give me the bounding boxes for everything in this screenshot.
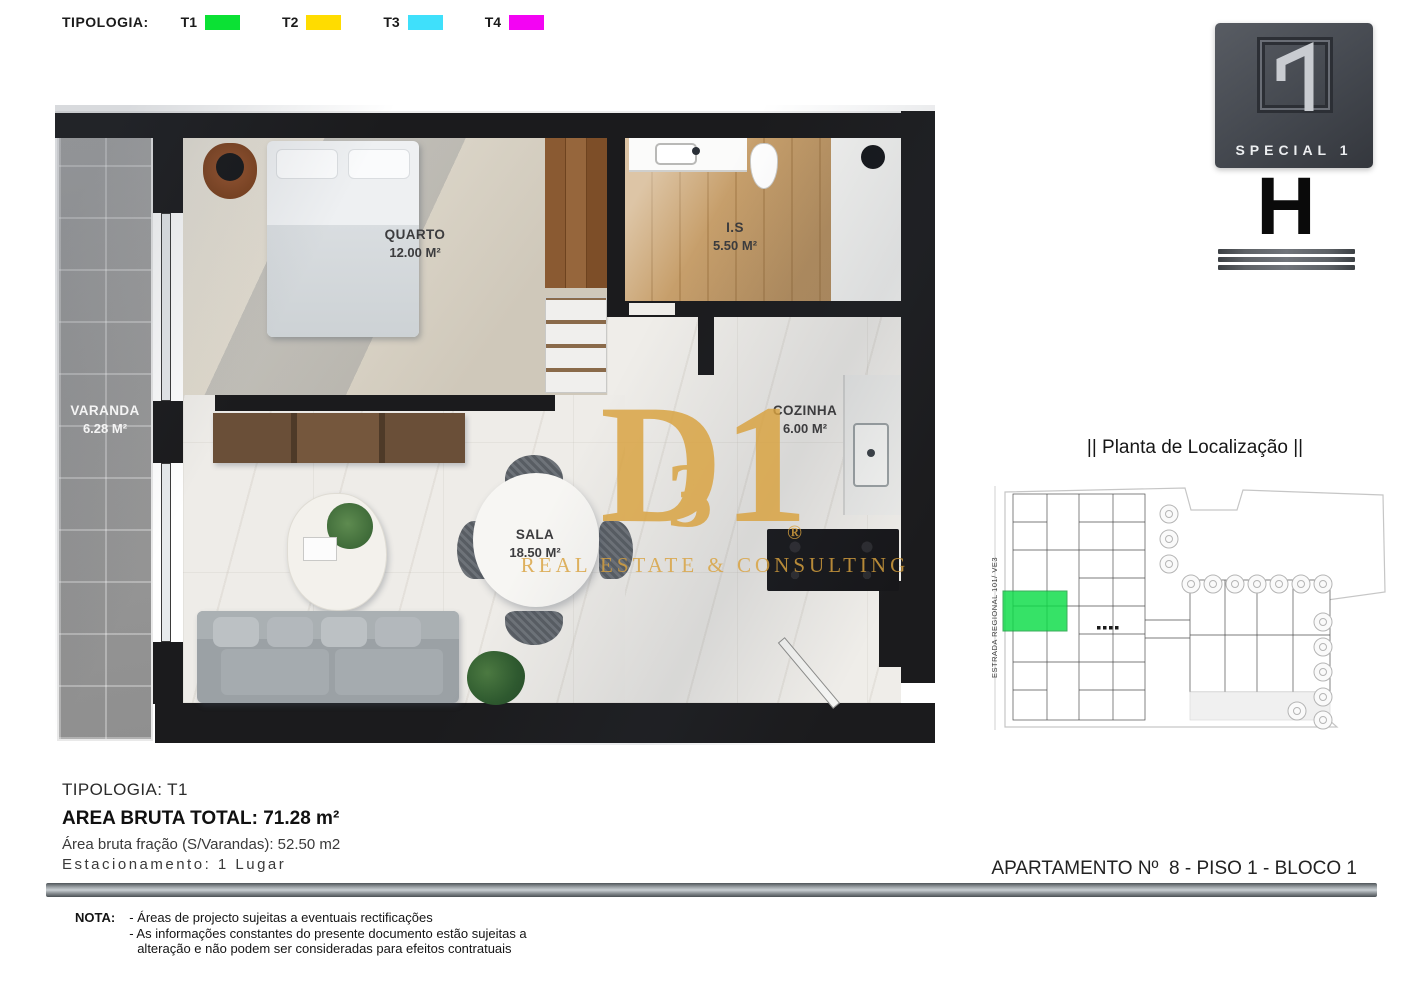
shoe-rack (545, 297, 607, 393)
coffee-table-book (303, 537, 337, 561)
sofa-seat-left (221, 649, 329, 695)
special1-logo-text: SPECIAL 1 (1215, 142, 1373, 158)
nota-block: NOTA: - Áreas de projecto sujeitas a eve… (75, 910, 527, 957)
room-label-quarto: QUARTO 12.00 M² (350, 227, 480, 260)
bed-pillow-left (276, 149, 338, 179)
room-area-sala: 18.50 M² (475, 545, 595, 560)
sideboard (213, 413, 465, 463)
room-name-sala: SALA (475, 527, 595, 542)
block-letter-h: H (1216, 166, 1356, 248)
room-area-quarto: 12.00 M² (350, 245, 480, 260)
legend-item-t2: T2 (282, 14, 341, 30)
bath-sink-basin (655, 143, 697, 165)
apartment-identifier: APARTAMENTO Nº 8 - PISO 1 - BLOCO 1 (991, 858, 1357, 880)
highlighted-unit-t1 (1003, 591, 1067, 631)
wall-quarto-sala (215, 395, 555, 411)
legend-label-t2: T2 (282, 14, 298, 30)
room-name-varanda: VARANDA (61, 403, 149, 418)
legend-label-t1: T1 (181, 14, 197, 30)
window-upper (161, 213, 171, 401)
brand-stripe-2 (1218, 257, 1355, 262)
room-label-cozinha: COZINHA 6.00 M² (745, 403, 865, 436)
site-plan: ESTRADA REGIONAL 101/ VE3 (985, 480, 1405, 742)
bath-faucet (692, 147, 700, 155)
room-label-is: I.S 5.50 M² (670, 220, 800, 253)
area-bruta-total: AREA BRUTA TOTAL: 71.28 m² (62, 808, 339, 830)
wall-top (55, 111, 935, 138)
legend-title: TIPOLOGIA: (62, 14, 149, 30)
legend-item-t3: T3 (383, 14, 442, 30)
legend-item-t1: T1 (181, 14, 240, 30)
shower-head (861, 145, 885, 169)
apartment-floor-plan: QUARTO 12.00 M² I.S 5.50 M² VARANDA 6.28… (55, 105, 935, 745)
room-label-varanda: VARANDA 6.28 M² (61, 403, 149, 436)
legend-swatch-t4 (509, 15, 544, 30)
area-bruta-fracao: Área bruta fração (S/Varandas): 52.50 m2 (62, 836, 340, 853)
room-name-quarto: QUARTO (350, 227, 480, 242)
wall-entry-corner (879, 581, 935, 667)
nota-label: NOTA: (75, 910, 115, 957)
legend-label-t3: T3 (383, 14, 399, 30)
sofa-cushion-4 (375, 617, 421, 647)
estacionamento: Estacionamento: 1 Lugar (62, 856, 286, 873)
nota-line-1: - Áreas de projecto sujeitas a eventuais… (129, 910, 526, 926)
special1-numeral-icon (1245, 29, 1345, 129)
room-area-is: 5.50 M² (670, 238, 800, 253)
road-label: ESTRADA REGIONAL 101/ VE3 (990, 557, 999, 678)
building-right (1145, 580, 1330, 720)
wall-varanda-low (153, 642, 183, 704)
door-gap-bath (629, 303, 675, 315)
location-plan-title: || Planta de Localização || (990, 437, 1400, 459)
special1-logo: SPECIAL 1 (1215, 23, 1373, 168)
divider-bar (46, 883, 1377, 897)
nota-line-3: alteração e não podem ser consideradas p… (129, 941, 526, 957)
sofa-seat-right (335, 649, 443, 695)
room-area-varanda: 6.28 M² (61, 421, 149, 436)
cooktop (767, 529, 899, 591)
typology-legend: TIPOLOGIA: T1 T2 T3 T4 (62, 14, 572, 30)
wall-quarto-bath (607, 138, 625, 310)
legend-swatch-t2 (306, 15, 341, 30)
page: TIPOLOGIA: T1 T2 T3 T4 (0, 0, 1414, 1000)
wall-varanda-top (153, 138, 183, 213)
room-name-cozinha: COZINHA (745, 403, 865, 418)
sofa-cushion-3 (321, 617, 367, 647)
room-name-is: I.S (670, 220, 800, 235)
window-lower (161, 463, 171, 642)
legend-item-t4: T4 (485, 14, 544, 30)
wall-varanda-mid (153, 401, 183, 463)
wall-bottom (155, 703, 935, 743)
wall-kitchen-left (698, 317, 714, 375)
nota-lines: - Áreas de projecto sujeitas a eventuais… (129, 910, 526, 957)
sofa-cushion-1 (213, 617, 259, 647)
sofa-cushion-2 (267, 617, 313, 647)
tipologia-line: TIPOLOGIA: T1 (62, 780, 188, 800)
legend-swatch-t3 (408, 15, 443, 30)
nota-line-2: - As informações constantes do presente … (129, 926, 526, 942)
bed-pillow-right (348, 149, 410, 179)
kitchen-faucet (867, 449, 875, 457)
legend-label-t4: T4 (485, 14, 501, 30)
brand-stripe-3 (1218, 265, 1355, 270)
armchair-seat (216, 153, 244, 181)
dining-chair-right (599, 521, 633, 579)
room-area-cozinha: 6.00 M² (745, 421, 865, 436)
brand-stripe-1 (1218, 249, 1355, 254)
legend-swatch-t1 (205, 15, 240, 30)
wardrobe (545, 138, 607, 288)
room-label-sala: SALA 18.50 M² (475, 527, 595, 560)
